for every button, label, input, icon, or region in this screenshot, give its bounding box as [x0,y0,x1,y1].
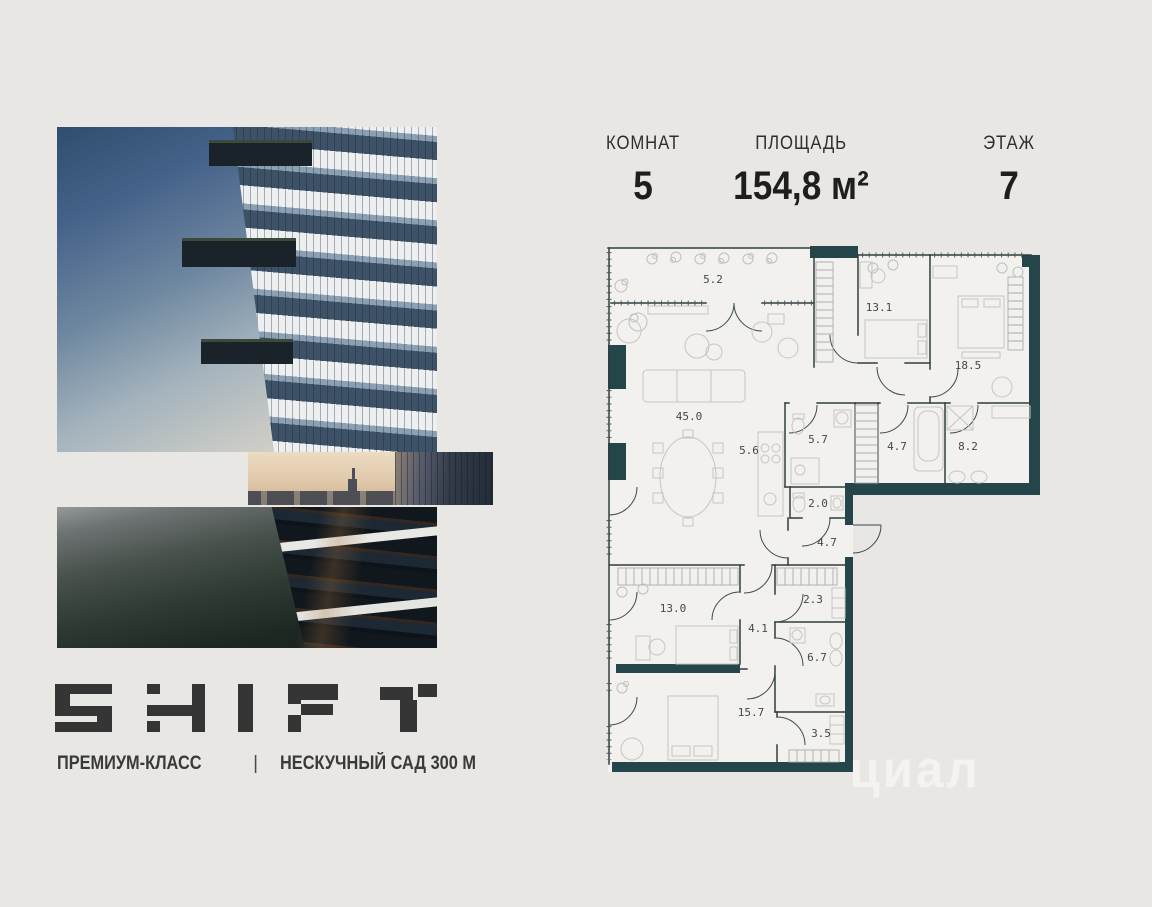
logo-letter-i [238,684,253,732]
rooms-label: КОМНАТ [606,133,680,155]
floor-label: ЭТАЖ [983,133,1035,155]
room-label-wc: 2.0 [808,497,828,510]
balcony-box [182,241,296,267]
logo-letter-t [380,684,437,732]
photo-shift-strip [248,452,493,505]
brand-caption: ПРЕМИУМ-КЛАСС|НЕСКУЧНЫЙ САД 300 М [57,753,477,775]
sunset-reflection [217,507,437,648]
room-label-bedroom-4: 15.7 [738,706,765,719]
logo-letter-f [288,684,338,732]
area-label: ПЛОЩАДЬ [755,133,847,155]
rooms-value: 5 [606,164,680,209]
stat-rooms: КОМНАТ 5 [601,133,685,209]
brand-logo: SHIFT [55,684,437,732]
logo-letter-s [55,684,112,732]
logo-letter-h [147,684,205,732]
room-label-bath-2: 4.7 [887,440,907,453]
msu-tower-silhouette [348,479,357,493]
room-label-hallway: 4.1 [748,622,768,635]
floor-value: 7 [983,164,1035,209]
stat-floor: ЭТАЖ 7 [980,133,1039,209]
location-label: НЕСКУЧНЫЙ САД 300 М [280,753,476,775]
room-label-bath-3: 8.2 [958,440,978,453]
balcony-box [201,342,292,365]
room-label-kitchen: 5.6 [739,444,759,457]
skyline-silhouette [248,491,400,505]
room-label-living: 45.0 [676,410,703,423]
room-label-bedroom-3: 13.0 [660,602,687,615]
stat-area: ПЛОЩАДЬ 154,8 м² [724,133,878,209]
room-label-terrace: 5.2 [703,273,723,286]
floor-plan: 5.2 13.1 18.5 45.0 5.6 5.7 4.7 8.2 2.0 4… [595,235,1055,775]
room-label-bath-1: 5.7 [808,433,828,446]
tower-spire [352,468,355,481]
building-photo-bottom [57,507,437,648]
room-label-bedroom-1: 13.1 [866,301,893,314]
glass-facade-strip [395,452,493,505]
balcony-box [209,143,312,166]
area-value: 154,8 м² [733,164,869,209]
room-label-entry-hall: 4.7 [817,536,837,549]
class-label: ПРЕМИУМ-КЛАСС [57,753,202,775]
caption-divider: | [253,753,258,775]
watermark: циал [849,740,980,800]
room-label-bath-4: 6.7 [807,651,827,664]
building-photo-top [57,127,437,452]
room-label-bedroom-2: 18.5 [955,359,982,372]
room-label-closet: 2.3 [803,593,823,606]
room-label-dressing: 3.5 [811,727,831,740]
